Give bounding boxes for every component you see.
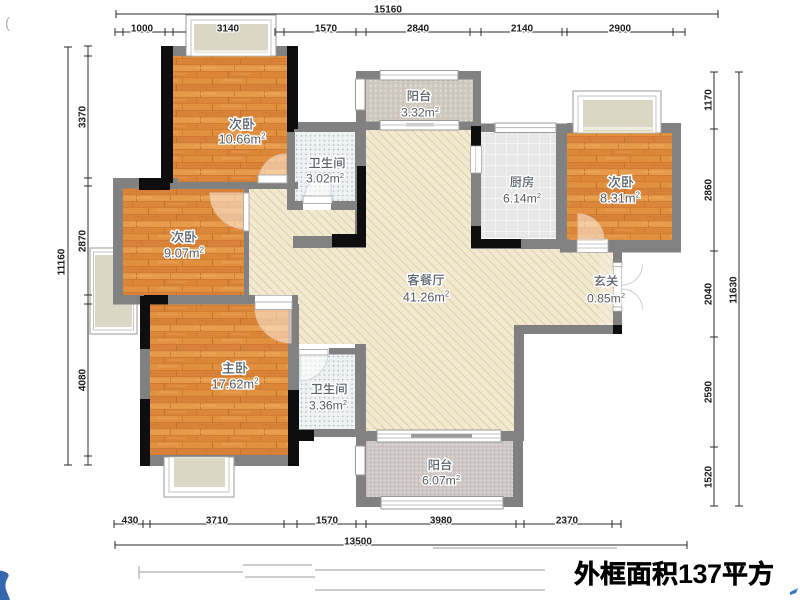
svg-text:17.62m2: 17.62m2 [211,377,258,392]
svg-text:1170: 1170 [704,89,715,111]
svg-text:2140: 2140 [511,24,534,35]
svg-text:0.85m2: 0.85m2 [587,291,625,306]
svg-text:3.02m2: 3.02m2 [306,171,344,186]
svg-text:3710: 3710 [206,516,229,527]
svg-text:8.31m2: 8.31m2 [600,191,640,206]
svg-text:2370: 2370 [556,516,579,527]
svg-text:3980: 3980 [430,516,453,527]
svg-text:41.26m2: 41.26m2 [403,290,449,305]
svg-text:1570: 1570 [316,516,339,527]
svg-text:9.07m2: 9.07m2 [164,246,204,261]
svg-text:1570: 1570 [315,24,338,35]
svg-text:2040: 2040 [704,282,715,305]
svg-text:1000: 1000 [131,24,154,35]
svg-text:11160: 11160 [57,248,68,275]
svg-text:2840: 2840 [407,24,430,35]
svg-text:13500: 13500 [344,537,372,548]
svg-text:11630: 11630 [729,276,740,304]
svg-text:(: ( [5,15,10,32]
svg-text:2900: 2900 [609,24,632,35]
svg-text:10.66m2: 10.66m2 [218,132,265,147]
svg-text:4080: 4080 [78,368,89,391]
svg-text:1520: 1520 [704,465,715,488]
svg-text:2590: 2590 [704,380,715,403]
svg-text:3.32m2: 3.32m2 [401,105,439,120]
svg-text:15160: 15160 [374,5,402,16]
svg-text:2870: 2870 [78,229,89,252]
svg-text:2860: 2860 [704,178,715,201]
svg-text:137: 137 [678,559,722,589]
svg-text:3370: 3370 [78,105,89,128]
svg-text:430: 430 [122,516,139,527]
svg-text:6.14m2: 6.14m2 [503,191,541,206]
svg-text:6.07m2: 6.07m2 [422,473,460,488]
svg-text:3140: 3140 [217,24,240,35]
svg-text:3.36m2: 3.36m2 [309,398,347,413]
